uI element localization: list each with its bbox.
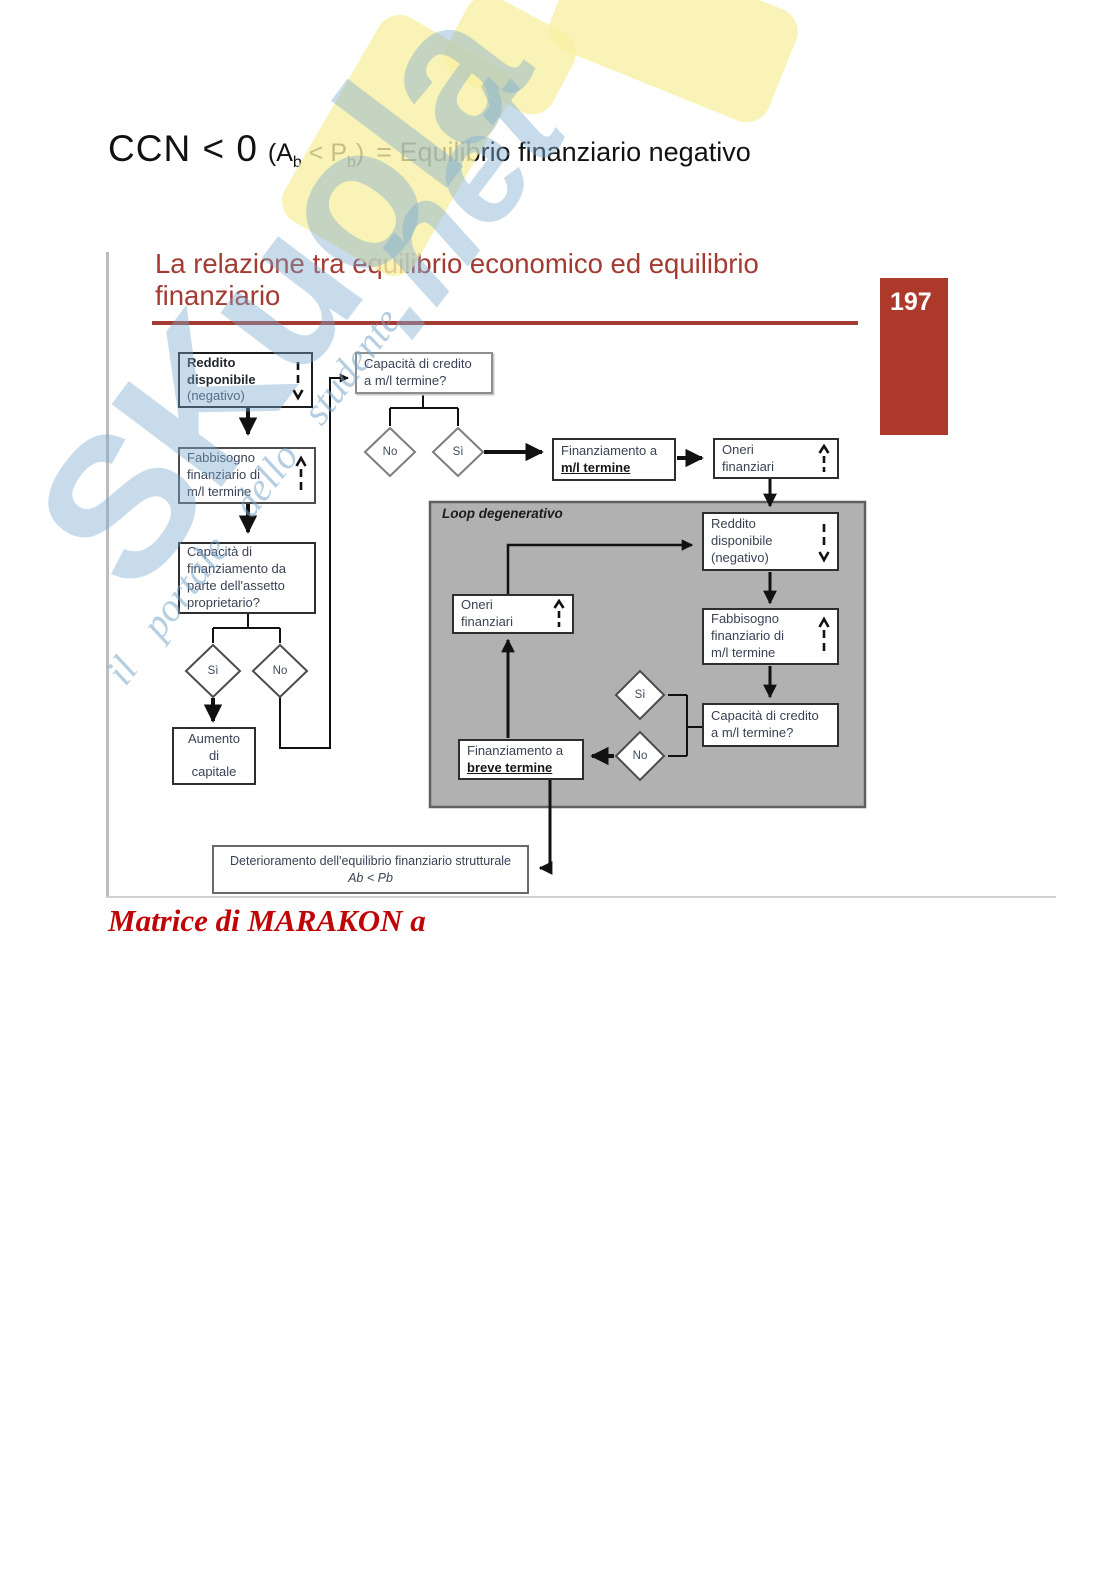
box-capacita-finanziamento: Capacità di finanziamento da parte dell'… bbox=[178, 542, 316, 614]
box-loop-fabbisogno: Fabbisogno finanziario di m/l termine bbox=[702, 608, 839, 665]
box-fabbisogno-finanziario: Fabbisogno finanziario di m/l termine bbox=[178, 447, 316, 504]
increase-dashed-arrow-icon bbox=[552, 599, 565, 629]
box-finanziamento-breve: Finanziamento a breve termine bbox=[458, 739, 584, 780]
increase-dashed-arrow-icon bbox=[817, 444, 830, 474]
diamond-label-no: No bbox=[383, 446, 398, 458]
diamond-label-no: No bbox=[273, 665, 288, 677]
document-page: CCN < 0 (Ab < Pb) = Equilibrio finanziar… bbox=[0, 0, 1116, 1579]
box-deterioramento: Deterioramento dell'equilibrio finanziar… bbox=[212, 845, 529, 894]
box-capacita-credito: Capacità di credito a m/l termine? bbox=[355, 352, 493, 394]
diamond-label-si: Sì bbox=[453, 446, 464, 458]
increase-dashed-arrow-icon bbox=[817, 616, 830, 658]
box-loop-capacita-credito: Capacità di credito a m/l termine? bbox=[702, 703, 839, 747]
diamond-label-si: Sì bbox=[635, 689, 646, 701]
box-finanziamento-ml: Finanziamento a m/l termine bbox=[552, 438, 676, 481]
loop-degenerativo-label: Loop degenerativo bbox=[442, 506, 563, 521]
box-loop-oneri: Oneri finanziari bbox=[452, 594, 574, 634]
box-oneri-finanziari: Oneri finanziari bbox=[713, 438, 839, 479]
diamond-label-si: Sì bbox=[208, 665, 219, 677]
increase-dashed-arrow-icon bbox=[294, 455, 307, 497]
box-reddito-disponibile: Reddito disponibile (negativo) bbox=[178, 352, 313, 408]
diamond-label-no: No bbox=[633, 750, 648, 762]
decrease-dashed-arrow-icon bbox=[291, 359, 304, 401]
box-aumento-capitale: Aumento di capitale bbox=[172, 727, 256, 785]
flowchart-connectors bbox=[0, 0, 1116, 1579]
box-loop-reddito: Reddito disponibile (negativo) bbox=[702, 512, 839, 571]
decrease-dashed-arrow-icon bbox=[817, 521, 830, 563]
